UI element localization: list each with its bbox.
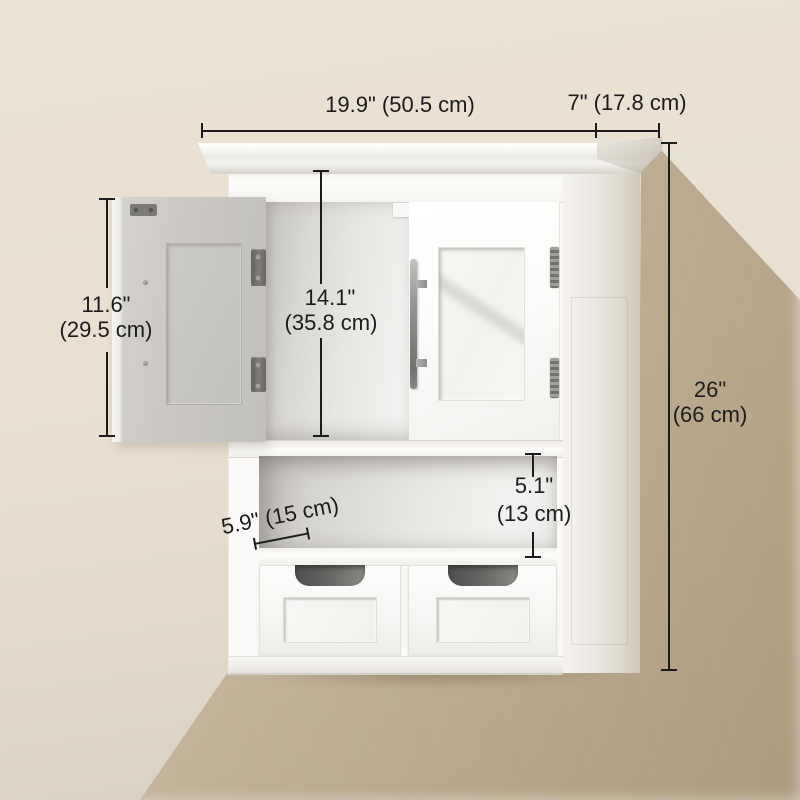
dim-tick (313, 170, 329, 172)
dim-tick (99, 435, 115, 437)
dim-label-shelf-height-in: 5.1" (515, 473, 553, 498)
dim-line (532, 532, 534, 558)
dim-label-door-height-in: 11.6" (82, 292, 131, 317)
dim-tick (201, 123, 203, 138)
dim-label-overall-height-cm: (66 cm) (673, 402, 748, 427)
dim-tick (99, 198, 115, 200)
dim-label-shelf-height-cm: (13 cm) (497, 501, 572, 526)
dim-tick (661, 142, 677, 144)
dim-label-interior-height-in: 14.1" (305, 285, 356, 310)
dim-line-top (202, 130, 660, 132)
dim-label-shelf-depth: 5.9" (15 cm) (219, 492, 341, 539)
dim-tick (525, 453, 541, 455)
dim-tick (661, 669, 677, 671)
dim-tick (313, 435, 329, 437)
dimension-annotations: 19.9" (50.5 cm) 7" (17.8 cm) 11.6" (29.5… (0, 0, 800, 800)
dim-tick (658, 123, 660, 138)
dim-label-interior-height-cm: (35.8 cm) (285, 310, 378, 335)
dim-tick (525, 556, 541, 558)
dim-tick (253, 538, 257, 550)
dim-label-overall-height-in: 26" (694, 377, 726, 402)
dim-line (320, 338, 322, 437)
product-dimension-diagram: 19.9" (50.5 cm) 7" (17.8 cm) 11.6" (29.5… (0, 0, 800, 800)
dim-label-top-depth: 7" (17.8 cm) (567, 90, 686, 115)
dim-label-top-width: 19.9" (50.5 cm) (325, 92, 475, 117)
dim-line (106, 200, 108, 288)
dim-line (320, 172, 322, 284)
dim-tick (306, 527, 310, 539)
dim-line (668, 144, 670, 671)
dim-tick (595, 123, 597, 138)
dim-line-shelf-depth (254, 532, 309, 545)
dim-label-door-height-cm: (29.5 cm) (60, 317, 153, 342)
dim-line (106, 352, 108, 437)
